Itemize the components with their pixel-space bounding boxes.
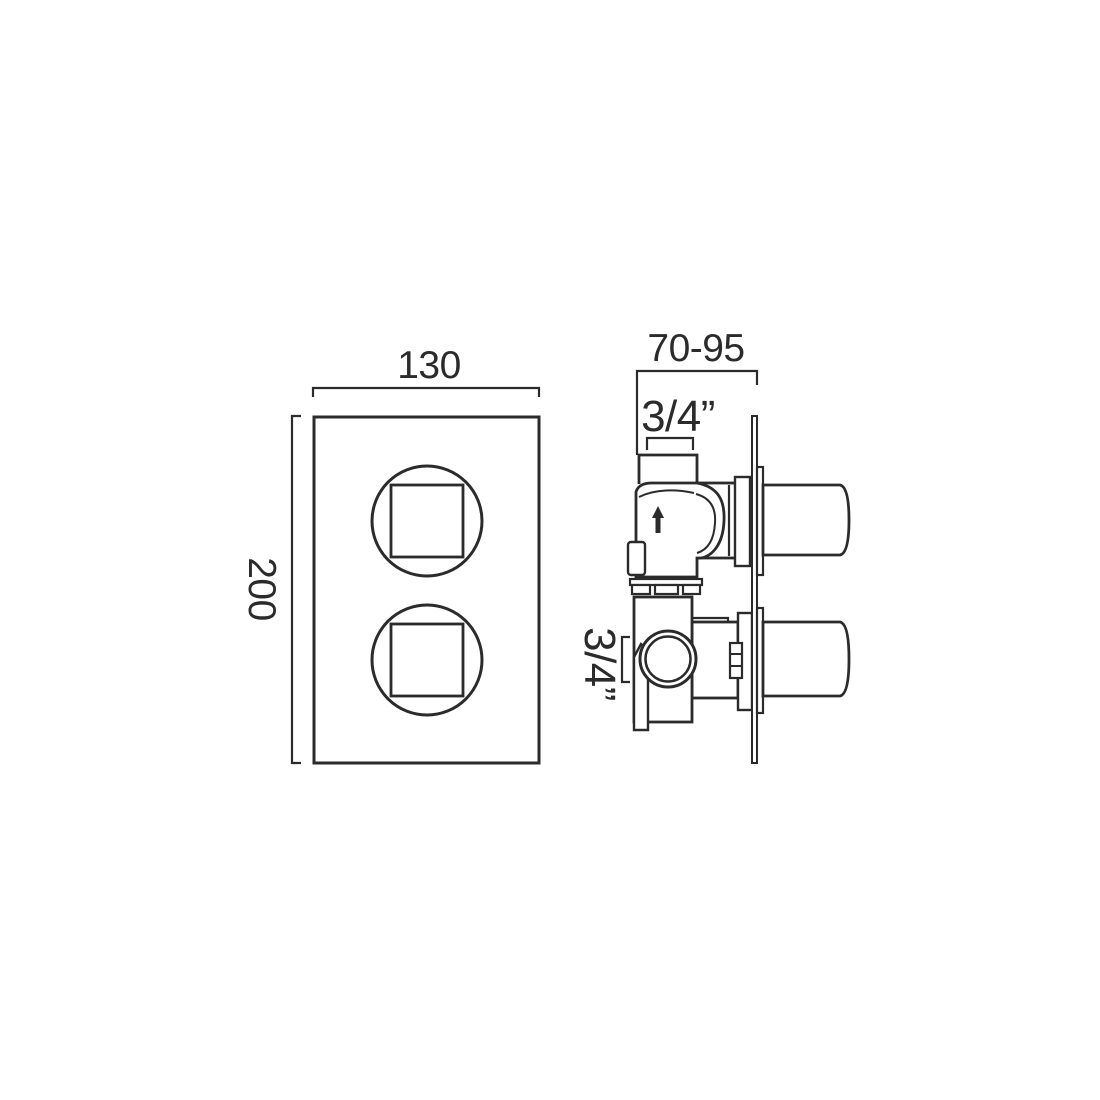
width-dimension-line [313,388,539,397]
connection-nut-flat-right [683,585,700,594]
bottom-handle-square [391,624,463,696]
height-dimension-line [292,416,301,763]
height-dimension-label: 200 [240,557,283,621]
depth-dimension-label: 70-95 [647,327,744,370]
upper-body-side-tab [628,542,645,575]
upper-flange [735,477,750,566]
top-handle-profile [763,485,849,555]
connection-nut-flat-middle [655,585,678,594]
connection-nut-flat-left [632,585,650,594]
inlet-pipe [639,455,697,484]
side-port-outer-circle [640,631,696,687]
width-dimension-label: 130 [397,344,461,387]
top-inlet-dimension-label: 3/4” [641,392,715,441]
top-handle-square [391,485,463,557]
front-view: 130 200 [240,344,539,763]
bottom-handle-profile [763,622,849,696]
upper-valve-body [636,483,724,577]
lower-adjuster-nubs [730,643,742,678]
technical-drawing-page: 130 200 70-95 3/4” [0,0,1100,1100]
side-port-dimension-label: 3/4” [575,627,624,701]
side-view: 70-95 3/4” [575,327,849,763]
shower-valve-technical-drawing: 130 200 70-95 3/4” [0,0,1100,1100]
